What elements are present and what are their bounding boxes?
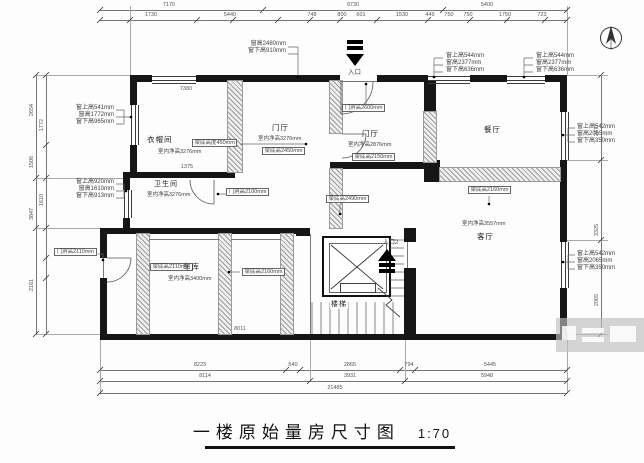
title-underline (205, 446, 455, 449)
dim-label: 601 (356, 12, 365, 18)
extension-line (310, 340, 311, 381)
annotation-line: 窗下高350mm (577, 265, 615, 272)
wall-segment (100, 334, 568, 340)
window-annotation-left-upper: 窗上高541mm 窗高1772mm 窗下高965mm (52, 105, 114, 126)
entrance-arrow-icon (347, 40, 363, 44)
annotation-line: 窗高1610mm (52, 186, 114, 193)
wall-segment (100, 228, 107, 258)
annotation-line: 窗上高542mm (577, 124, 615, 131)
annotation-line: 窗高1772mm (52, 112, 114, 119)
clear-height-label: 室内净高3276mm (258, 136, 301, 142)
dim-label: 8223 (194, 362, 206, 368)
entrance2-arrow-icon (379, 269, 395, 273)
window-annotation-top-right-2: 窗上高544mm 窗高2377mm 窗下高636mm (536, 53, 574, 74)
dim-line (100, 20, 567, 21)
room-label-bathroom: 卫生间 (154, 181, 178, 189)
dim-line (36, 75, 37, 334)
room-label-garage: 车库 (183, 263, 200, 271)
door-height-box: 门洞高2110mm (54, 248, 97, 256)
dim-label: 21485 (327, 385, 342, 391)
wall-segment (560, 160, 567, 242)
window-annotation-top-left: 窗高2480mm 窗下高910mm (222, 41, 286, 55)
annotation-line: 窗上高541mm (52, 105, 114, 112)
dim-label: 2065 (594, 294, 600, 306)
dim-label: 7380 (180, 86, 192, 92)
clear-height-label: 室内净高3557mm (462, 221, 505, 227)
wall-segment (424, 81, 436, 112)
beam-note-box: 梁底高2450mm (262, 147, 305, 155)
dim-label: 5400 (481, 2, 493, 8)
wall-segment (330, 162, 425, 169)
hatch-wall (137, 234, 149, 334)
annotation-line: 窗高2065mm (577, 258, 615, 265)
dim-label: 5445 (484, 362, 496, 368)
window-symbol (131, 105, 139, 145)
door-height-box: 门洞高2100mm (226, 188, 269, 196)
dim-label: 2654 (29, 104, 35, 116)
extension-line (567, 75, 608, 76)
hatch-wall (281, 234, 293, 334)
drawing-title-block: 一楼原始量房尺寸图1:70 (0, 418, 644, 443)
room-label-foyer2: 门厅 (362, 130, 379, 138)
dim-label: 9730 (347, 2, 359, 8)
dim-label: 5948 (481, 373, 493, 379)
door-opening-line (407, 242, 408, 268)
door-opening-line (340, 81, 377, 82)
wall-segment (196, 75, 340, 82)
dim-label: 1730 (145, 12, 157, 18)
beam-note-box: 梁底高度450mm (192, 139, 237, 147)
extension-line (405, 340, 406, 381)
dim-line (100, 10, 567, 11)
annotation-line: 窗下高965mm (52, 119, 114, 126)
dim-label: 750 (444, 12, 453, 18)
wall-segment (560, 75, 567, 112)
annotation-line: 窗下高913mm (52, 193, 114, 200)
door-height-box: 门洞高2600mm (342, 104, 385, 112)
window-symbol (124, 190, 132, 218)
dim-label: 5440 (224, 12, 236, 18)
hatch-wall (228, 81, 242, 172)
dim-label: 3847 (29, 208, 35, 220)
dim-label: 2865 (344, 362, 356, 368)
dim-line (100, 381, 567, 382)
window-symbol (428, 76, 470, 84)
beam-note-box: 梁底高2160mm (468, 186, 511, 194)
annotation-line: 窗下高636mm (446, 67, 484, 74)
dim-label: 3931 (344, 373, 356, 379)
room-label-stairs: 楼梯 (330, 301, 348, 309)
stair-wall-line (310, 234, 311, 334)
entrance2-arrow-icon (378, 249, 396, 261)
window-annotation-top-right-1: 窗上高544mm 窗高2377mm 窗下高636mm (446, 53, 484, 74)
window-annotation-right-upper: 窗上高542mm 窗高2065mm 窗下高350mm (577, 124, 615, 145)
drawing-scale: 1:70 (418, 426, 451, 441)
annotation-line: 窗下高636mm (536, 67, 574, 74)
dim-label: 723 (537, 12, 546, 18)
dim-label: 540 (288, 362, 297, 368)
annotation-line: 窗上高920mm (52, 179, 114, 186)
dim-line (100, 370, 567, 371)
extension-line (130, 6, 131, 75)
annotation-line: 窗高2480mm (222, 41, 286, 48)
annotation-line: 窗下高910mm (222, 48, 286, 55)
annotation-line: 窗高2065mm (577, 131, 615, 138)
beam-note-box: 梁底高2160mm (242, 268, 285, 276)
annotation-line: 窗上高542mm (577, 251, 615, 258)
dim-label: 8114 (199, 373, 211, 379)
entrance2-arrow-icon (379, 263, 395, 267)
drawing-title: 一楼原始量房尺寸图 (193, 423, 400, 442)
room-label-cloakroom: 衣帽间 (147, 136, 173, 144)
window-symbol (152, 76, 196, 84)
entrance-arrow-icon (347, 46, 363, 50)
garage-track-line (149, 239, 219, 240)
watermark (556, 318, 644, 352)
annotation-line: 窗高2377mm (536, 60, 574, 67)
dim-label: 1506 (29, 156, 35, 168)
hatch-bay-window (440, 168, 560, 181)
extension-line (567, 240, 608, 241)
hatch-wall (424, 112, 436, 162)
wall-segment (377, 75, 428, 82)
extension-line (100, 340, 101, 393)
hatch-wall (330, 81, 342, 133)
wall-segment (100, 278, 107, 340)
beam-note-box: 梁底高2490mm (326, 195, 369, 203)
hatch-wall (219, 234, 231, 334)
window-symbol (507, 76, 545, 84)
entrance2-label: 入口2 (383, 240, 398, 246)
dim-label: 3325 (594, 224, 600, 236)
floor-plan-drawing: 7170 9730 5400 1730 5440 748 800 601 153… (0, 0, 644, 463)
dim-label: 2161 (29, 279, 35, 291)
door-opening-line (103, 258, 104, 278)
window-annotation-right-lower: 窗上高542mm 窗高2065mm 窗下高350mm (577, 251, 615, 272)
dim-label: 1610 (39, 194, 45, 206)
dim-label: 1375 (181, 164, 193, 170)
dim-label: 1750 (499, 12, 511, 18)
garage-track-line (231, 239, 281, 240)
dim-line (46, 75, 47, 334)
wall-segment (470, 75, 507, 82)
clear-height-label: 室内净高3276mm (158, 149, 201, 155)
room-label-foyer1: 门厅 (272, 124, 289, 132)
wall-segment (404, 268, 416, 334)
entrance-arrow-icon (346, 54, 364, 66)
dim-label: 800 (337, 12, 346, 18)
wall-segment (296, 228, 310, 236)
window-symbol (561, 242, 569, 288)
dim-label: 1772 (39, 119, 45, 131)
wall-segment (424, 160, 440, 182)
annotation-line: 窗下高350mm (577, 138, 615, 145)
elevator-counterweight (340, 283, 376, 293)
annotation-line: 窗上高544mm (536, 53, 574, 60)
window-symbol (561, 112, 569, 160)
annotation-line: 窗上高544mm (446, 53, 484, 60)
extension-line (36, 75, 130, 76)
dim-label: 748 (307, 12, 316, 18)
room-label-living: 客厅 (477, 233, 494, 241)
annotation-line: 窗高2377mm (446, 60, 484, 67)
clear-height-label: 室内净高2876mm (348, 142, 391, 148)
extension-line (567, 160, 608, 161)
dim-label: 7170 (163, 2, 175, 8)
dim-line (601, 75, 602, 334)
clear-height-label: 室内净高3276mm (147, 192, 190, 198)
dim-line (100, 393, 567, 394)
window-annotation-left-lower: 窗上高920mm 窗高1610mm 窗下高913mm (52, 179, 114, 200)
wall-segment (123, 172, 235, 178)
extension-line (36, 334, 100, 335)
entrance-label: 入口 (348, 70, 361, 76)
extension-line (36, 228, 100, 229)
dim-label: 750 (463, 12, 472, 18)
dim-label: 1530 (396, 12, 408, 18)
clear-height-label: 室内净高3400mm (168, 276, 211, 282)
north-compass-icon (601, 26, 622, 50)
beam-note-box: 梁底高2150mm (352, 153, 395, 161)
dim-label: 449 (425, 12, 434, 18)
dim-label: 8011 (234, 326, 246, 332)
dim-label: 794 (404, 362, 413, 368)
wall-segment (404, 228, 416, 242)
room-label-dining: 餐厅 (484, 126, 501, 134)
wall-segment (130, 75, 137, 105)
